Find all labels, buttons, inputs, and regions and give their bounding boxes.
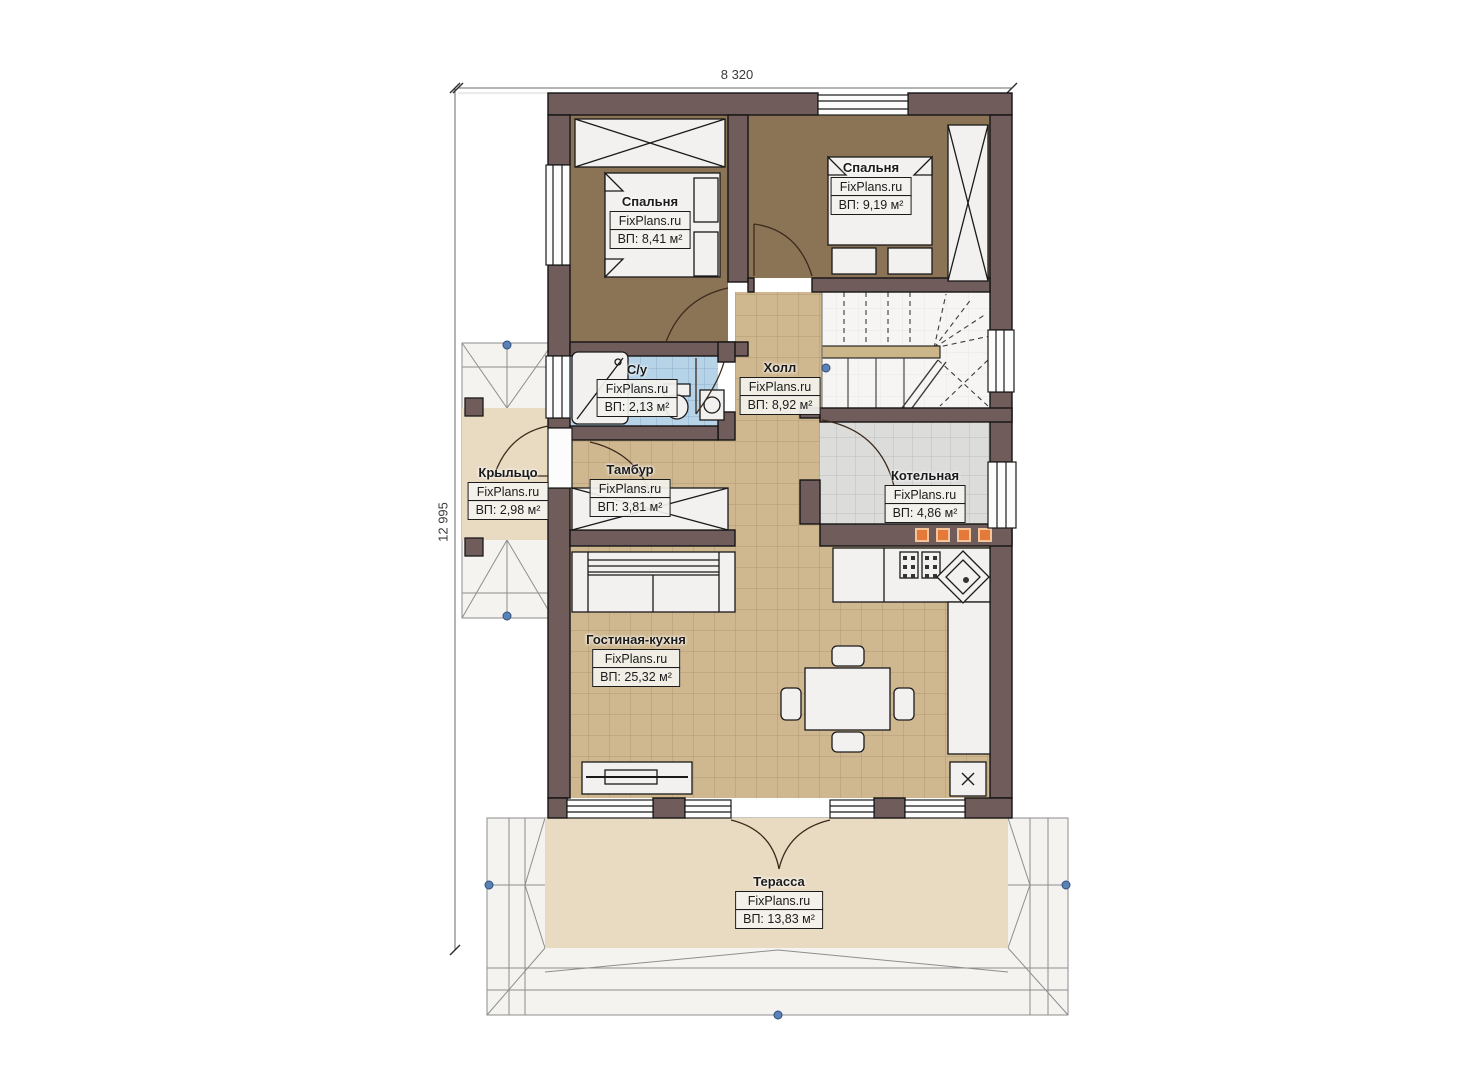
window-bottom-4 — [905, 800, 965, 818]
window-top-bedroom2 — [818, 95, 908, 115]
room-area: ВП: 8,92 м² — [740, 395, 821, 415]
room-label-boiler: Котельная FixPlans.ru ВП: 4,86 м² — [885, 468, 966, 523]
porch-post-2 — [465, 538, 483, 556]
room-label-hall: Холл FixPlans.ru ВП: 8,92 м² — [740, 360, 821, 415]
room-area: ВП: 2,98 м² — [468, 500, 549, 520]
watermark: FixPlans.ru — [740, 377, 821, 397]
room-label-porch: Крыльцо FixPlans.ru ВП: 2,98 м² — [468, 465, 549, 520]
watermark: FixPlans.ru — [735, 891, 823, 911]
room-label-vestibule: Тамбур FixPlans.ru ВП: 3,81 м² — [590, 462, 671, 517]
room-area: ВП: 13,83 м² — [735, 909, 823, 929]
room-label-living: Гостиная-кухня FixPlans.ru ВП: 25,32 м² — [586, 632, 686, 687]
room-name: Котельная — [891, 468, 959, 483]
dimension-width-label: 8 320 — [721, 67, 754, 82]
room-name: Спальня — [843, 160, 899, 175]
tv-stand — [582, 762, 692, 794]
room-area: ВП: 2,13 м² — [597, 397, 678, 417]
floor-plan-canvas: 8 320 12 995 Спальня FixPlans.ru ВП: 8,4… — [0, 0, 1473, 1080]
room-label-bedroom-2: Спальня FixPlans.ru ВП: 9,19 м² — [831, 160, 912, 215]
room-name: Холл — [764, 360, 797, 375]
room-area: ВП: 25,32 м² — [592, 667, 680, 687]
watermark: FixPlans.ru — [468, 482, 549, 502]
wardrobe-bedroom1 — [575, 119, 725, 167]
wardrobe-bedroom2 — [948, 125, 988, 281]
window-right-stairs — [988, 330, 1014, 392]
watermark: FixPlans.ru — [592, 649, 680, 669]
room-name: Крыльцо — [478, 465, 537, 480]
watermark: FixPlans.ru — [885, 485, 966, 505]
porch-post-1 — [465, 398, 483, 416]
stairs-landing-rail — [822, 346, 940, 358]
room-name: Гостиная-кухня — [586, 632, 686, 647]
watermark: FixPlans.ru — [597, 379, 678, 399]
room-name: Терасса — [753, 874, 805, 889]
room-area: ВП: 8,41 м² — [610, 229, 691, 249]
dimension-height-label: 12 995 — [436, 502, 451, 542]
room-area: ВП: 9,19 м² — [831, 195, 912, 215]
watermark: FixPlans.ru — [590, 479, 671, 499]
room-label-bathroom: С/у FixPlans.ru ВП: 2,13 м² — [597, 362, 678, 417]
entrance-door — [548, 428, 572, 488]
room-name: Тамбур — [606, 462, 653, 477]
window-bottom-2 — [685, 800, 731, 818]
window-left-bathroom — [546, 356, 570, 418]
room-label-bedroom-1: Спальня FixPlans.ru ВП: 8,41 м² — [610, 194, 691, 249]
utility-box — [950, 762, 986, 796]
window-bottom-1 — [567, 800, 653, 818]
room-name: Спальня — [622, 194, 678, 209]
room-label-terrace: Терасса FixPlans.ru ВП: 13,83 м² — [735, 874, 823, 929]
room-area: ВП: 3,81 м² — [590, 497, 671, 517]
washing-machine — [700, 390, 724, 420]
room-area: ВП: 4,86 м² — [885, 503, 966, 523]
window-bottom-3 — [830, 800, 874, 818]
door-right-boiler — [988, 462, 1016, 528]
room-name: С/у — [627, 362, 647, 377]
watermark: FixPlans.ru — [610, 211, 691, 231]
window-left-bedroom1 — [546, 165, 570, 265]
watermark: FixPlans.ru — [831, 177, 912, 197]
sofa — [572, 552, 735, 612]
